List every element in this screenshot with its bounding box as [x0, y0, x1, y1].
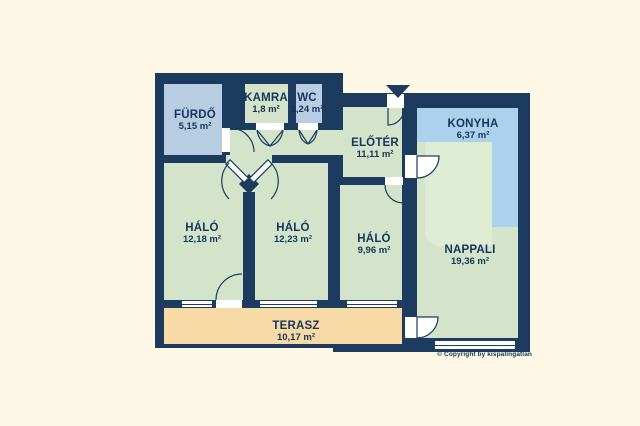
label-hallway: ELŐTÉR 11,11 m² — [351, 137, 399, 161]
room-area: 1,24 m² — [291, 105, 324, 116]
label-kitchen: KONYHA 6,37 m² — [447, 118, 498, 142]
bedroom-2-door-swing — [271, 163, 278, 199]
pantry-door-swing — [257, 130, 283, 146]
wc-door-swing — [299, 130, 317, 144]
room-area: 12,23 m² — [274, 235, 312, 246]
bedroom-3-door-swing — [385, 185, 403, 203]
terrace-door-swing — [417, 317, 438, 338]
bathroom-door-swing — [230, 128, 254, 152]
door-symbols-overlay — [0, 0, 640, 426]
label-bathroom: FÜRDŐ 5,15 m² — [174, 109, 216, 133]
label-bedroom-1: HÁLÓ 12,18 m² — [183, 222, 221, 246]
label-pantry: KAMRA 1,8 m² — [244, 92, 288, 116]
label-bedroom-3: HÁLÓ 9,96 m² — [357, 233, 390, 257]
copyright-text: © Copyright by kispalingatlan — [437, 351, 532, 358]
room-area: 12,18 m² — [183, 235, 221, 246]
bedroom-1-door-swing — [222, 163, 229, 199]
room-area: 5,15 m² — [174, 122, 216, 133]
kitchen-door-swing — [417, 156, 439, 178]
room-area: 10,17 m² — [272, 333, 319, 344]
room-area: 6,37 m² — [447, 131, 498, 142]
room-area: 1,8 m² — [244, 105, 288, 116]
room-area: 19,36 m² — [444, 257, 495, 268]
floor-plan-canvas: FÜRDŐ 5,15 m² KAMRA 1,8 m² WC 1,24 m² EL… — [0, 0, 640, 426]
label-bedroom-2: HÁLÓ 12,23 m² — [274, 222, 312, 246]
label-living: NAPPALI 19,36 m² — [444, 244, 495, 268]
bedroom-1-terrace-door-swing — [216, 274, 242, 300]
label-terrace: TERASZ 10,17 m² — [272, 320, 319, 344]
label-wc: WC 1,24 m² — [291, 92, 324, 116]
entrance-door-swing — [388, 108, 404, 125]
room-area: 11,11 m² — [351, 150, 399, 161]
entrance-arrow-icon — [386, 85, 410, 98]
room-area: 9,96 m² — [357, 246, 390, 257]
bedroom-2-door-leaf — [249, 160, 272, 183]
